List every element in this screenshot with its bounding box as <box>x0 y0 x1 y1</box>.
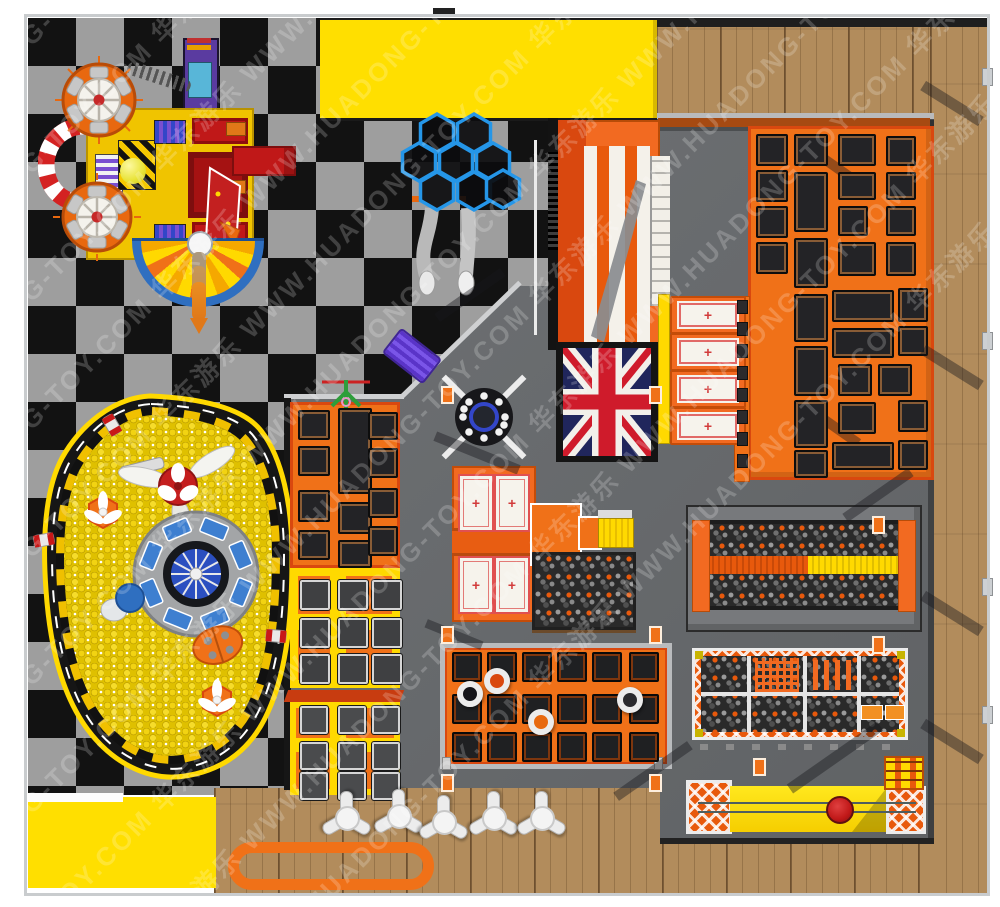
trampoline-mat <box>756 206 788 238</box>
carousel-toy <box>134 512 258 636</box>
climb-wall-bricks <box>884 756 924 790</box>
cabin-yellow-strip <box>658 294 670 444</box>
trampoline-mat <box>300 742 328 770</box>
dodge-ball <box>484 668 510 694</box>
trampoline-mat <box>898 440 928 470</box>
trampoline-mat <box>452 732 482 762</box>
wall-bracket <box>872 636 885 654</box>
trampoline-mat <box>372 618 402 648</box>
cabin-panel: + <box>677 301 739 329</box>
trampoline-mat <box>338 618 368 648</box>
trampoline-mat <box>338 742 366 770</box>
trampoline-mat <box>886 206 916 236</box>
trampoline-mat <box>838 134 876 166</box>
trampoline-mat <box>557 694 587 724</box>
carousel-pole <box>192 252 206 320</box>
ninja-pad <box>885 705 905 720</box>
slide-white-edge <box>598 510 632 518</box>
corner-block <box>695 729 703 737</box>
trampoline-mat <box>487 694 517 724</box>
wall-slot <box>737 300 748 314</box>
trampoline-mat <box>838 364 872 396</box>
spinner-table <box>432 810 457 835</box>
ninja-beam <box>803 656 807 732</box>
trampoline-mat <box>372 742 400 770</box>
trampoline-mat <box>629 732 659 762</box>
cabin-block-band <box>452 528 532 556</box>
ninja-beam <box>701 692 899 696</box>
wall-slot <box>737 322 748 336</box>
zipline-seat-disc <box>826 796 854 824</box>
trampoline-mat <box>522 732 552 762</box>
wall-tab <box>982 706 993 724</box>
trampoline-mat <box>756 134 788 166</box>
cross-mark: + <box>704 418 712 434</box>
trampoline-mat <box>794 134 828 166</box>
foam-pit-center <box>532 552 636 630</box>
spinner-table <box>482 806 507 831</box>
wall-tab <box>982 578 993 596</box>
trampoline-mat <box>838 242 876 276</box>
cabin-panel: + <box>677 338 739 366</box>
ninja-beam <box>747 656 751 732</box>
bench-path <box>228 842 434 890</box>
trampoline-mat <box>300 772 328 800</box>
trampoline-mat <box>794 238 828 288</box>
kart-car <box>266 629 287 643</box>
cabin-panel: + <box>677 375 739 403</box>
trampoline-mat <box>372 580 402 610</box>
wall-tab <box>982 68 993 86</box>
corner-block <box>695 651 703 659</box>
trampoline-mat <box>794 346 828 396</box>
union-jack-mat <box>563 348 651 456</box>
cross-mark: + <box>508 577 516 593</box>
cross-mark: + <box>472 495 480 511</box>
ninja-beam <box>857 656 861 732</box>
slide-curve <box>591 180 646 342</box>
trampoline-mat <box>756 242 788 274</box>
wall-bracket <box>441 386 454 404</box>
wall-slot <box>737 366 748 380</box>
trampoline-mat <box>898 400 928 432</box>
trampoline-mat <box>838 172 876 200</box>
trampoline-mat <box>298 490 330 522</box>
trampoline-mat <box>338 540 372 568</box>
wall-cabin-pad: + <box>670 407 746 445</box>
wall-slot <box>737 454 748 468</box>
zipline-platform-right <box>886 786 926 834</box>
train-playground <box>38 34 293 339</box>
wall-cabin-pad: + <box>670 370 746 408</box>
trampoline-mat <box>794 172 828 232</box>
trampoline-mat <box>338 654 368 684</box>
trampoline-mat <box>368 488 398 518</box>
corner-block <box>897 651 905 659</box>
wall-bracket <box>753 758 766 776</box>
ninja-pad <box>861 705 883 720</box>
trampoline-mat <box>756 170 788 202</box>
trampoline-mat <box>338 502 372 534</box>
cross-mark: + <box>508 495 516 511</box>
cross-mark: + <box>704 381 712 397</box>
cabin-panel: + <box>677 412 739 440</box>
trampoline-mat <box>832 328 894 358</box>
zipline-platform-left <box>686 780 732 834</box>
red-beam <box>284 690 404 702</box>
trampoline-mat <box>886 242 916 276</box>
yellow-slide <box>598 518 634 548</box>
wall-bracket <box>649 774 662 792</box>
wall-bracket <box>649 626 662 644</box>
trampoline-mat <box>368 412 398 440</box>
trampoline-mat <box>838 206 868 236</box>
trampoline-mat <box>298 446 330 476</box>
wall-slot <box>737 388 748 402</box>
wall-slot <box>737 432 748 446</box>
dodge-ball <box>617 687 643 713</box>
trampoline-mat <box>522 652 552 682</box>
lane-beam-yellow <box>808 556 898 574</box>
trampoline-mat <box>832 290 894 322</box>
trampoline-mat <box>898 288 928 322</box>
basketball-stand <box>318 372 378 412</box>
dodge-ball <box>457 681 483 707</box>
ninja-hang-bars <box>813 660 855 690</box>
wall-tab <box>982 332 993 350</box>
trampoline-mat <box>300 618 330 648</box>
lane-end-pad <box>898 520 916 612</box>
trampoline-mat <box>886 172 916 200</box>
trampoline-mat <box>838 402 876 434</box>
wall-slot <box>737 410 748 424</box>
trampoline-mat <box>298 530 330 560</box>
zipline-cable <box>698 811 916 813</box>
trampoline-mat <box>794 294 828 342</box>
zipline-cable <box>698 802 916 804</box>
trampoline-mat <box>372 654 402 684</box>
trampoline-mat <box>878 364 912 396</box>
carousel-pole-tip <box>190 318 208 334</box>
wall-bracket <box>872 516 885 534</box>
cabin-panel-white: + <box>494 556 530 614</box>
trampoline-mat <box>557 652 587 682</box>
trampoline-mat <box>794 400 828 448</box>
cross-mark: + <box>472 577 480 593</box>
trampoline-mat <box>300 706 328 734</box>
ninja-floor-ticks <box>700 744 900 750</box>
wall-bracket <box>649 386 662 404</box>
spinner-table <box>335 806 360 831</box>
trampoline-mat <box>338 408 372 494</box>
wall-bracket <box>441 626 454 644</box>
wall-cabin-pad: + <box>670 333 746 371</box>
trampoline-mat <box>298 410 330 440</box>
playground-floorplan-render: ++++++++华东游乐 WWW.HUADONG-TOY.COM 华东游乐 WW… <box>0 0 1000 907</box>
lane-beam-orange <box>708 556 808 574</box>
wall-cabin-pad: + <box>670 296 746 334</box>
trampoline-mat <box>300 654 330 684</box>
block-post <box>442 757 451 770</box>
trampoline-mat <box>592 732 622 762</box>
trampoline-mat <box>794 450 828 478</box>
lane-end-pad <box>692 520 710 612</box>
trampoline-mat <box>368 448 398 478</box>
spinner-table <box>387 804 412 829</box>
trampoline-mat <box>592 652 622 682</box>
trampoline-mat <box>338 706 366 734</box>
cabin-panel-white: + <box>494 474 530 532</box>
trampoline-mat <box>886 136 916 166</box>
ninja-net-grid <box>755 658 799 692</box>
foam-lane-top <box>708 524 898 556</box>
spinner-table <box>530 806 555 831</box>
wall-bracket <box>441 774 454 792</box>
climb-holds-strip <box>650 156 670 306</box>
trampoline-mat <box>368 526 398 556</box>
trampoline-mat <box>832 442 894 470</box>
trampoline-mat <box>338 580 368 610</box>
dodge-ball <box>528 709 554 735</box>
trampoline-mat <box>487 732 517 762</box>
cabin-panel-white: + <box>458 556 494 614</box>
mushroom-toy <box>116 584 144 612</box>
corner-block <box>897 729 905 737</box>
cross-mark: + <box>704 307 712 323</box>
trampoline-mat <box>557 732 587 762</box>
cabin-panel-white: + <box>458 474 494 532</box>
trampoline-mat <box>629 652 659 682</box>
wall-slot <box>737 344 748 358</box>
trampoline-mat <box>452 652 482 682</box>
foam-lane-bottom <box>708 574 898 606</box>
trampoline-mat <box>300 580 330 610</box>
cross-mark: + <box>704 344 712 360</box>
trampoline-mat <box>372 706 400 734</box>
